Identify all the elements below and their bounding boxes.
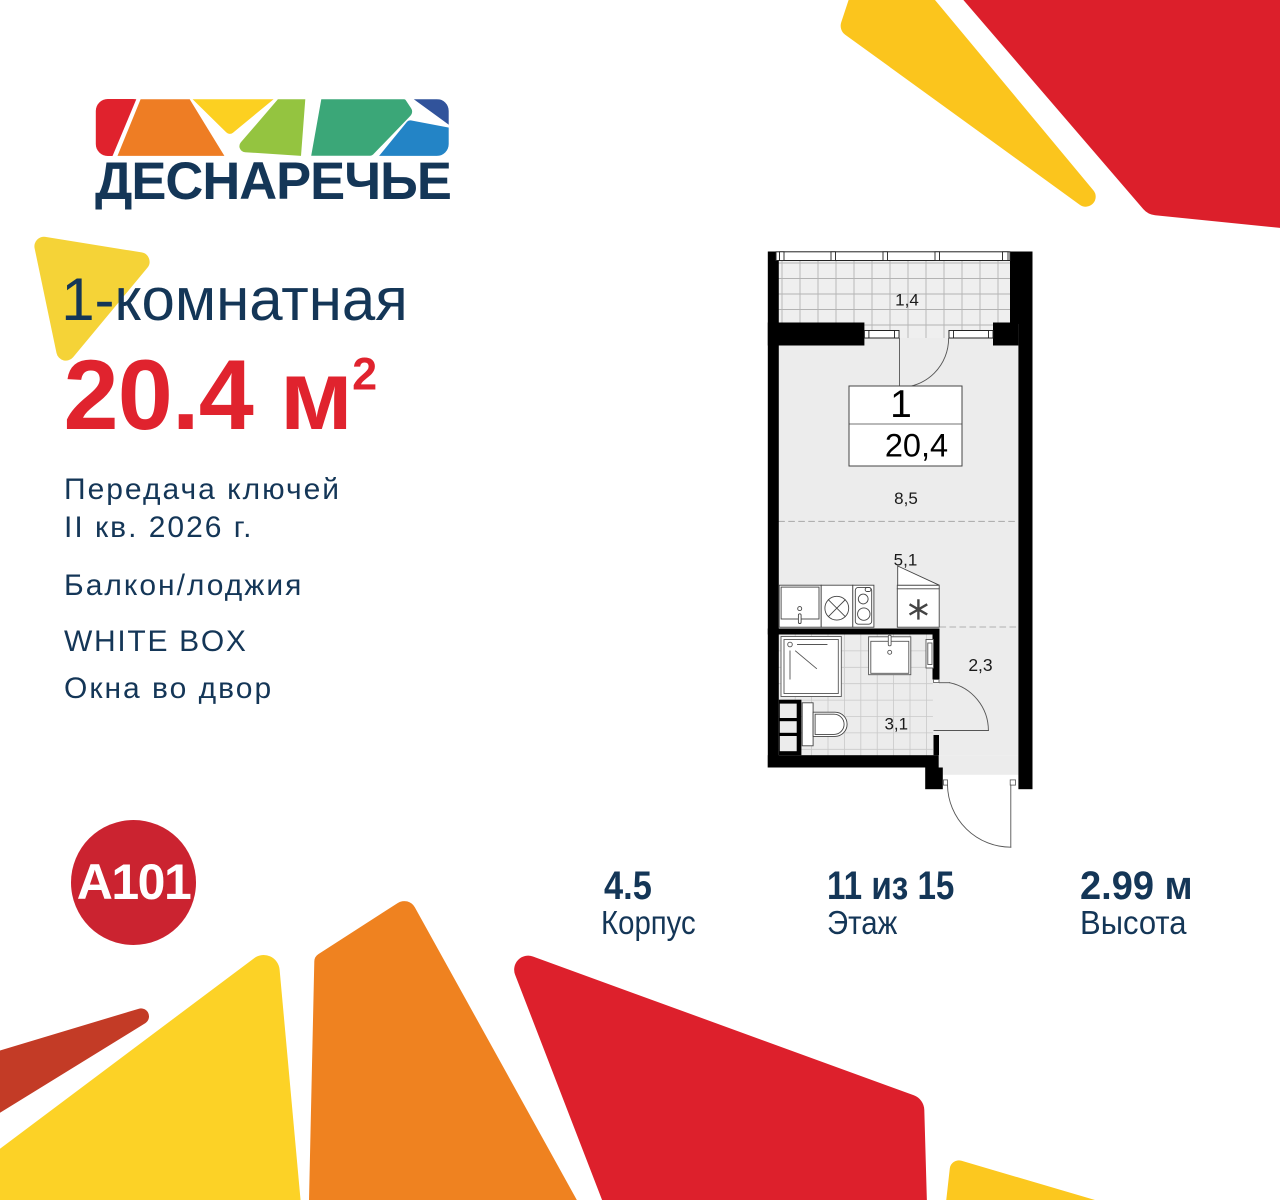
svg-text:8,5: 8,5	[894, 489, 918, 508]
svg-text:20,4: 20,4	[885, 427, 948, 463]
svg-text:5,1: 5,1	[894, 551, 918, 570]
svg-text:1: 1	[890, 383, 912, 426]
svg-text:3,1: 3,1	[884, 714, 908, 733]
svg-text:1,4: 1,4	[895, 291, 919, 310]
svg-text:2,3: 2,3	[968, 655, 992, 675]
